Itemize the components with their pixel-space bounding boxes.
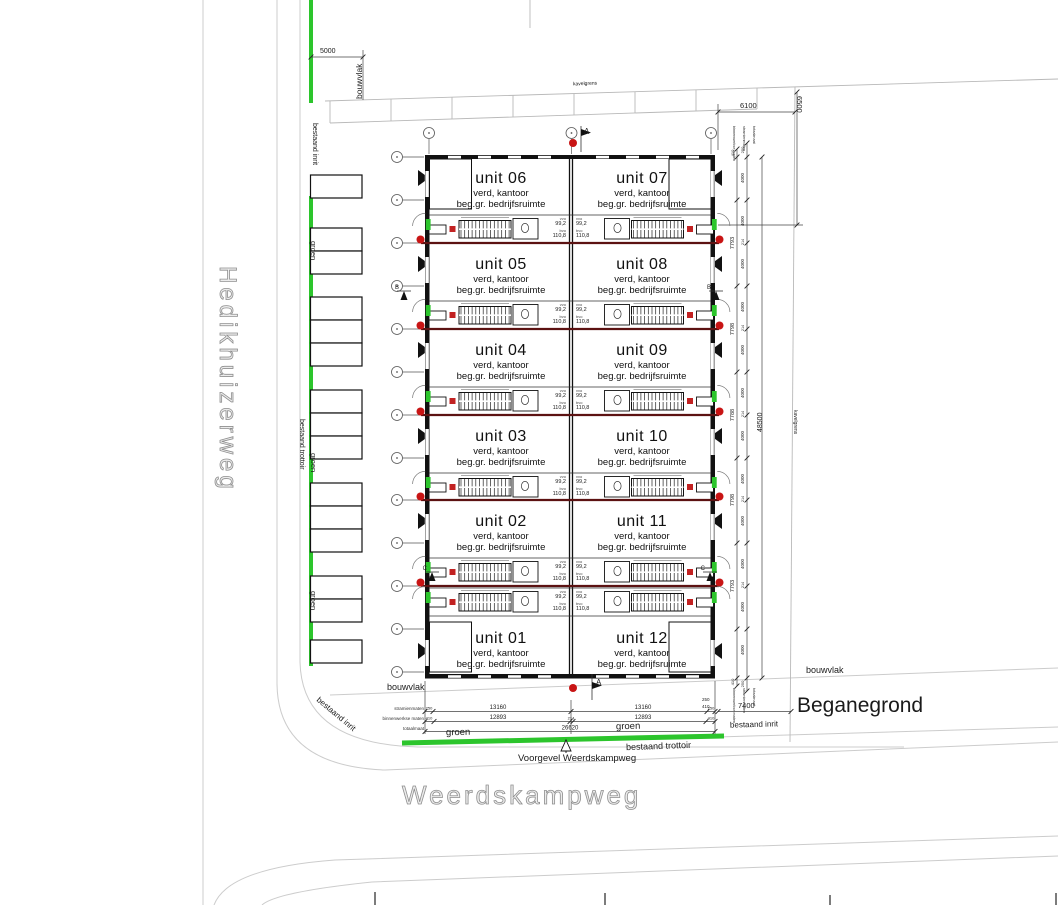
window-notch [448,156,461,159]
unit-name: unit 01 [432,630,570,648]
chain-name-binnen-bottom: binnenwerkse maten [732,688,736,723]
green-door-marker [712,592,717,603]
door-swing-arc [717,586,730,599]
area-value: 99,2 [532,479,566,486]
door-mat [697,483,714,492]
grid-bubble-dot [396,499,398,501]
dim-b: 214 [568,716,575,721]
red-dot [716,322,724,330]
section-marker-a-bottom: A [596,679,601,687]
dim-4000: 4000 [740,601,745,612]
street-name-bottom: Weerdskampweg [402,782,641,809]
unit-areas-right: vvo99,2bvo110,8 [576,388,610,412]
dim-inner-span: 7793 [730,580,736,592]
dim-b: 12893 [490,715,507,721]
groen-label-left-3: groen [309,591,317,610]
drawing-title: Beganegrond [797,695,923,717]
unit-floor0: beg.gr. bedrijfsruimte [432,542,570,553]
unit-label-left: unit 05verd, kantoorbeg.gr. bedrijfsruim… [432,256,570,296]
dim-4000: 4000 [740,172,745,183]
unit-label-left: unit 02verd, kantoorbeg.gr. bedrijfsruim… [432,513,570,553]
unit-floor1: verd, kantoor [432,188,570,199]
green-door-marker [426,219,431,230]
red-marker-square [687,312,693,318]
bestaand-inrit-label-top: bestaand inrit [311,123,318,165]
parking-stall [311,640,363,663]
red-marker-square [450,226,456,232]
unit-label-right: unit 07verd, kantoorbeg.gr. bedrijfsruim… [573,170,711,210]
parking-stall [311,175,363,198]
grid-bubble-dot [428,132,430,134]
dim-214: 214 [741,582,745,588]
unit-floor1: verd, kantoor [573,188,711,199]
red-marker-square [450,484,456,490]
red-dot [417,322,425,330]
red-dot [716,493,724,501]
window-notch [626,675,639,678]
window-notch [656,675,669,678]
unit-floor1: verd, kantoor [573,531,711,542]
unit-name: unit 06 [432,170,570,188]
window-notch [538,675,551,678]
red-dot [716,408,724,416]
area-value: 110,8 [576,233,610,240]
dim-4000: 4000 [740,258,745,269]
door-swing-arc [413,471,426,484]
unit-name: unit 05 [432,256,570,274]
unit-floor0: beg.gr. bedrijfsruimte [432,371,570,382]
door-swing-arc [413,213,426,226]
grid-bubble-dot [396,542,398,544]
unit-floor0: beg.gr. bedrijfsruimte [573,659,711,670]
bouwvlak-label-bottom-right: bouwvlak [806,666,844,675]
unit-name: unit 07 [573,170,711,188]
groen-label-bottom-right: groen [616,722,641,733]
unit-areas-right: vvo99,2bvo110,8 [576,302,610,326]
grid-bubble-dot [396,585,398,587]
area-value: 110,8 [532,576,566,583]
door-mat [429,598,446,607]
unit-floor1: verd, kantoor [432,274,570,285]
door-mat [697,397,714,406]
area-value: 110,8 [532,606,566,613]
area-value: 110,8 [576,405,610,412]
unit-floor0: beg.gr. bedrijfsruimte [432,659,570,670]
unit-floor0: beg.gr. bedrijfsruimte [573,542,711,553]
area-value: 99,2 [576,221,610,228]
green-door-marker [426,592,431,603]
door-swing-arc [717,213,730,226]
dim-5000: 5000 [320,48,336,55]
area-value: 99,2 [532,221,566,228]
unit-floor1: verd, kantoor [432,648,570,659]
window-notch [508,675,521,678]
parking-stall [311,483,363,506]
dim-b: 13160 [490,705,507,711]
unit-floor1: verd, kantoor [432,531,570,542]
unit-areas-left: vvo99,2bvo110,8 [532,589,566,613]
grid-bubble-dot [571,132,573,134]
area-value: 110,8 [576,319,610,326]
dim-4000: 4000 [740,473,745,484]
unit-floor1: verd, kantoor [432,446,570,457]
parking-stall [311,599,363,622]
grid-bubble-dot [396,671,398,673]
area-value: 110,8 [576,606,610,613]
unit-floor1: verd, kantoor [573,360,711,371]
chain-name-totaal-top: totaalmaat [752,126,756,144]
red-dot [417,493,425,501]
window-notch [508,156,521,159]
dim-250: 250 [740,680,745,687]
dim-214: 214 [741,325,745,331]
unit-label-left: unit 01verd, kantoorbeg.gr. bedrijfsruim… [432,630,570,670]
dim-214: 214 [741,496,745,502]
window-notch [686,156,699,159]
unit-areas-right: vvo99,2bvo110,8 [576,559,610,583]
door-swing-arc [717,471,730,484]
unit-label-right: unit 10verd, kantoorbeg.gr. bedrijfsruim… [573,428,711,468]
door-mat [429,397,446,406]
area-value: 99,2 [532,564,566,571]
grid-bubble-dot [396,371,398,373]
bestaand-trottoir-label-left: bestaand trottoir [298,419,305,470]
section-letter: B [395,285,399,291]
dim-410: 410 [730,678,735,685]
dim-6500: 6500 [795,96,803,113]
door-mat [429,483,446,492]
dim-4000: 4000 [740,301,745,312]
unit-areas-left: vvo99,2bvo110,8 [532,216,566,240]
dim-410-right: 410 [702,705,710,710]
unit-label-left: unit 06verd, kantoorbeg.gr. bedrijfsruim… [432,170,570,210]
red-marker-square [687,569,693,575]
window-notch [478,156,491,159]
unit-name: unit 11 [573,513,711,531]
unit-areas-right: vvo99,2bvo110,8 [576,589,610,613]
green-door-marker [712,477,717,488]
unit-label-right: unit 09verd, kantoorbeg.gr. bedrijfsruim… [573,342,711,382]
grid-bubble-dot [710,132,712,134]
area-value: 99,2 [532,307,566,314]
groen-label-left-2: groen [309,453,317,472]
dim-6100: 6100 [740,102,757,110]
dim-4000: 4000 [740,515,745,526]
door-swing-arc [413,586,426,599]
window-notch [538,156,551,159]
grid-bubble-dot [396,414,398,416]
row-label-stramienmaten: stramienmaten [364,707,424,712]
unit-floor1: verd, kantoor [573,274,711,285]
red-dot [716,579,724,587]
unit-areas-left: vvo99,2bvo110,8 [532,302,566,326]
dim-4000: 4000 [740,430,745,441]
door-mat [697,598,714,607]
dim-inner-span: 7793 [730,237,736,249]
area-value: 99,2 [576,307,610,314]
window-notch [656,156,669,159]
window-notch [448,675,461,678]
groen-label-left-1: groen [309,241,317,260]
street-name-left: Hedikhuizerweg [215,266,240,493]
door-swing-arc [413,385,426,398]
red-dot-center-bottom [569,684,577,692]
unit-name: unit 09 [573,342,711,360]
facade-label: Voorgevel Weerdskampweg [518,754,636,764]
unit-areas-left: vvo99,2bvo110,8 [532,388,566,412]
unit-areas-left: vvo99,2bvo110,8 [532,474,566,498]
green-door-marker [712,562,717,573]
groen-label-bottom-left: groen [446,728,470,738]
parking-stall [311,529,363,552]
chain-name-stramien-top: stramienmaten [742,126,746,151]
red-dot-center-top [569,139,577,147]
center-wall [570,159,573,674]
dim-inner-span: 7798 [730,494,736,506]
area-value: 110,8 [532,233,566,240]
unit-name: unit 12 [573,630,711,648]
unit-label-right: unit 12verd, kantoorbeg.gr. bedrijfsruim… [573,630,711,670]
area-value: 99,2 [576,564,610,571]
unit-name: unit 02 [432,513,570,531]
door-mat [697,311,714,320]
door-mat [429,225,446,234]
chain-name-totaal-bottom: totaalmaat [752,688,756,706]
red-dot [716,236,724,244]
area-value: 99,2 [576,594,610,601]
dim-inner-span: 7788 [730,409,736,421]
section-letter: C [701,566,706,572]
unit-areas-right: vvo99,2bvo110,8 [576,216,610,240]
dim-214: 214 [741,239,745,245]
unit-floor0: beg.gr. bedrijfsruimte [432,457,570,468]
grid-bubble-dot [396,242,398,244]
unit-areas-left: vvo99,2bvo110,8 [532,559,566,583]
area-value: 110,8 [576,491,610,498]
unit-areas-right: vvo99,2bvo110,8 [576,474,610,498]
unit-label-right: unit 08verd, kantoorbeg.gr. bedrijfsruim… [573,256,711,296]
section-letter: C [423,566,428,572]
dim-4000: 4000 [740,387,745,398]
red-marker-square [687,226,693,232]
door-mat [429,311,446,320]
door-swing-arc [717,385,730,398]
unit-name: unit 03 [432,428,570,446]
dim-250-right: 250 [702,698,710,703]
door-swing-arc [413,299,426,312]
grid-bubble-dot [396,328,398,330]
parking-stall [311,436,363,459]
dim-inner-span: 7798 [730,323,736,335]
section-marker-a-top: A [584,128,589,136]
dim-b: 410 [708,716,715,721]
red-dot [417,236,425,244]
area-value: 110,8 [532,405,566,412]
dim-b: 410 [426,716,433,721]
site-plan-canvas: 4104107793779877887798779325025040004000… [0,0,1058,905]
dim-b: 250 [426,706,433,711]
area-value: 110,8 [532,491,566,498]
red-dot [417,408,425,416]
area-value: 99,2 [532,594,566,601]
grid-bubble-dot [396,156,398,158]
row-label-binnenwerkse: binnenwerkse maten [364,717,424,722]
parking-stall [311,506,363,529]
red-marker-square [450,398,456,404]
bouwvlak-label-top: bouwvlak [355,64,364,99]
unit-label-right: unit 11verd, kantoorbeg.gr. bedrijfsruim… [573,513,711,553]
area-value: 99,2 [532,393,566,400]
dim-total: 26620 [562,726,579,732]
red-marker-square [687,398,693,404]
chain-name-stramien-bottom: stramienmaten [742,688,746,713]
chain-name-binnen-top: binnenwerkse maten [732,126,736,161]
parking-stall [311,228,363,251]
unit-floor0: beg.gr. bedrijfsruimte [432,285,570,296]
dim-214: 214 [741,411,745,417]
red-marker-square [450,599,456,605]
parking-stall [311,251,363,274]
red-dot [417,579,425,587]
red-marker-square [687,599,693,605]
dim-b: 13160 [635,705,652,711]
window-notch [596,156,609,159]
parking-stall [311,413,363,436]
unit-label-left: unit 03verd, kantoorbeg.gr. bedrijfsruim… [432,428,570,468]
unit-floor0: beg.gr. bedrijfsruimte [432,199,570,210]
window-notch [478,675,491,678]
unit-floor1: verd, kantoor [573,648,711,659]
area-value: 99,2 [576,393,610,400]
door-mat [697,225,714,234]
red-marker-square [687,484,693,490]
unit-floor0: beg.gr. bedrijfsruimte [573,285,711,296]
green-door-marker [712,391,717,402]
kavelgrens-label-right: kavelgrens [792,410,797,434]
bouwvlak-label-bottom-left: bouwvlak [387,683,425,692]
bestaand-inrit-label-bottom-right: bestaand inrit [730,720,778,730]
parking-stall [311,576,363,599]
kavelgrens-label-top: kavelgrens [573,82,597,88]
unit-label-left: unit 04verd, kantoorbeg.gr. bedrijfsruim… [432,342,570,382]
window-notch [686,675,699,678]
area-value: 110,8 [576,576,610,583]
unit-name: unit 04 [432,342,570,360]
dim-4000: 4000 [740,344,745,355]
green-door-marker [712,219,717,230]
unit-floor0: beg.gr. bedrijfsruimte [573,457,711,468]
parking-stall [311,390,363,413]
unit-name: unit 08 [573,256,711,274]
grid-bubble-dot [396,628,398,630]
section-flag [401,291,408,300]
area-value: 110,8 [532,319,566,326]
door-swing-arc [717,299,730,312]
unit-name: unit 10 [573,428,711,446]
green-door-marker [712,305,717,316]
grid-bubble-dot [396,199,398,201]
unit-floor1: verd, kantoor [573,446,711,457]
parking-stall [311,297,363,320]
parking-stall [311,320,363,343]
red-marker-square [450,569,456,575]
dim-4000: 4000 [740,215,745,226]
dim-4000: 4000 [740,644,745,655]
area-value: 99,2 [576,479,610,486]
unit-floor0: beg.gr. bedrijfsruimte [573,199,711,210]
red-marker-square [450,312,456,318]
door-swing-arc [717,556,730,569]
grid-bubble-dot [396,457,398,459]
dim-48500: 48500 [757,413,764,432]
unit-floor1: verd, kantoor [432,360,570,371]
parking-stall [311,343,363,366]
dim-4000: 4000 [740,558,745,569]
green-door-marker [426,391,431,402]
row-label-totaalmaat: totaalmaat [364,727,424,732]
unit-floor0: beg.gr. bedrijfsruimte [573,371,711,382]
green-door-marker [426,305,431,316]
window-notch [626,156,639,159]
green-door-marker [426,477,431,488]
